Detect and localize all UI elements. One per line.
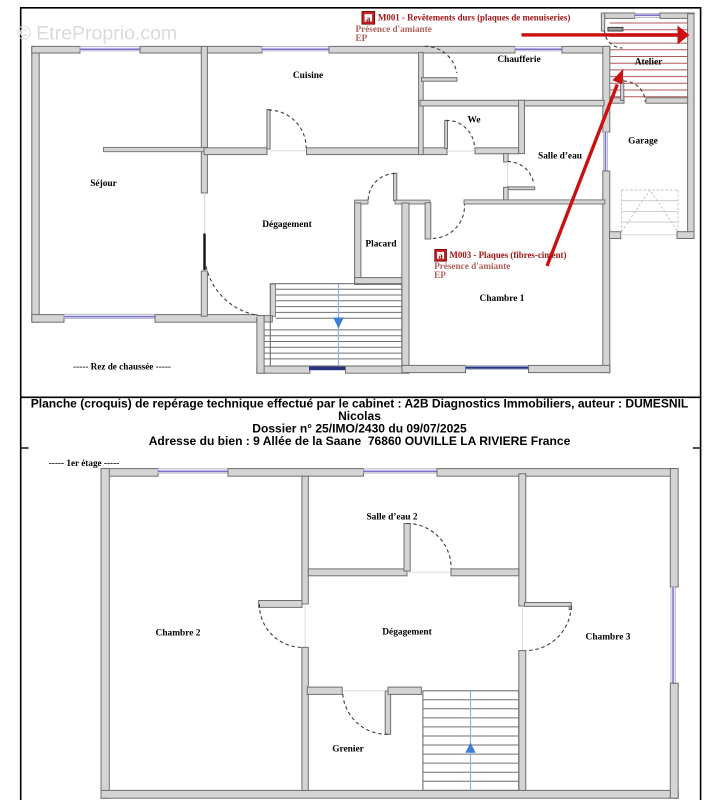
svg-text:We: We	[467, 116, 480, 126]
svg-text:Chambre 3: Chambre 3	[586, 632, 631, 642]
svg-text:M001 - Revêtements durs (plaqu: M001 - Revêtements durs (plaques de menu…	[378, 12, 570, 22]
svg-text:----- 1er étage -----: ----- 1er étage -----	[49, 458, 119, 468]
svg-text:a: a	[366, 13, 371, 23]
svg-text:Salle d’eau 2: Salle d’eau 2	[366, 512, 417, 522]
svg-text:Dégagement: Dégagement	[382, 627, 432, 637]
svg-text:Chambre 2: Chambre 2	[156, 628, 201, 638]
svg-text:a: a	[439, 252, 443, 261]
svg-text:© EtreProprio.com: © EtreProprio.com	[17, 23, 178, 45]
svg-text:Chaufferie: Chaufferie	[497, 55, 540, 65]
svg-text:Adresse du bien : 9 Allée de l: Adresse du bien : 9 Allée de la Saane 76…	[149, 434, 571, 448]
svg-text:EP: EP	[434, 270, 446, 280]
svg-text:Grenier: Grenier	[332, 744, 364, 754]
svg-text:Placard: Placard	[365, 239, 397, 249]
svg-text:Cuisine: Cuisine	[293, 71, 323, 81]
svg-text:Chambre 1: Chambre 1	[480, 294, 525, 304]
svg-text:Dégagement: Dégagement	[262, 220, 312, 230]
svg-text:----- Rez de chaussée -----: ----- Rez de chaussée -----	[73, 362, 171, 372]
svg-text:M003 - Plaques (fibres-ciment): M003 - Plaques (fibres-ciment)	[450, 250, 567, 260]
svg-text:Atelier: Atelier	[635, 57, 663, 67]
svg-text:Salle d’eau: Salle d’eau	[538, 152, 582, 162]
svg-text:Séjour: Séjour	[90, 179, 117, 189]
svg-text:Garage: Garage	[628, 136, 658, 146]
svg-text:EP: EP	[356, 33, 368, 43]
